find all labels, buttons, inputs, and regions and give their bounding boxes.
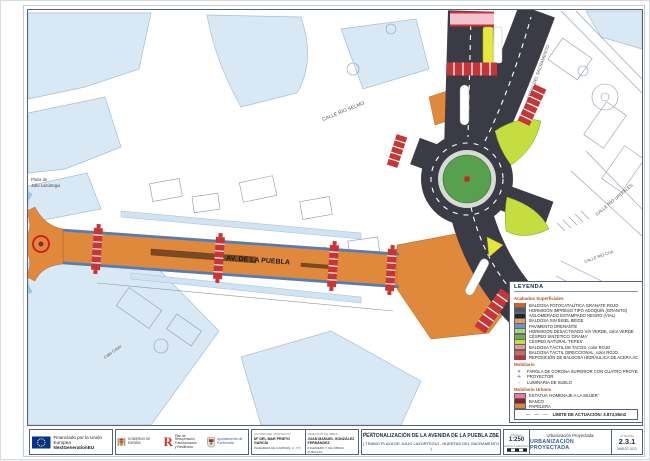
boundary-dash-icon: — — —: [526, 412, 549, 418]
color-swatch: [514, 355, 526, 360]
plan-title-label: PLANO:: [364, 431, 375, 435]
scale-value: 1:250: [509, 437, 524, 444]
graphic-scale-bar: [507, 448, 527, 452]
eu-funding-line1: Financiado por la Unión Europea: [54, 435, 111, 445]
scale-box: ESCALA 1:250 ESCALA GRÁFICA: [504, 430, 530, 454]
fountain-ornament: [33, 236, 49, 252]
plaza-label-line2: Julio Lazúrtegui: [31, 183, 60, 188]
plan-title-box: PLANO: PEATONALIZACIÓN DE LA AVENIDA DE …: [361, 429, 501, 455]
sheet-number-box: Nº PLANO 2.3.1 MARZO 2023: [612, 430, 642, 454]
authors-box: AUTORA DEL PROYECTO: Mª DEL MAR PRIETO G…: [251, 429, 359, 455]
plan-sheet: Plaza de Julio Lazúrtegui AV. DE LA PUEB…: [0, 0, 650, 460]
sheet-name-box: Urbanización Proyectada: URBANIZACIÓN PR…: [530, 430, 612, 454]
sheet-number: 2.3.1: [619, 438, 636, 446]
plaza-label-line1: Plaza de: [31, 177, 48, 182]
ground-light-icon: ◦: [514, 380, 524, 385]
plan-recuperacion-logo: R Plan de Recuperación, Transformación y…: [163, 435, 206, 450]
eu-funding-line2: NextGenerationEU: [54, 445, 111, 450]
legend-mobiliario-heading: Mobiliario: [514, 362, 638, 367]
plan-title-line1: PEATONALIZACIÓN DE LA AVENIDA DE LA PUEB…: [363, 433, 499, 439]
plan-title-line2: ( TRAMO PLAZA DE JULIO LAZÚRTEGUI - HUER…: [362, 441, 500, 451]
legend-item: REPOSICIÓN DE BALDOSA HIDRÁULICA DE ACER…: [514, 355, 638, 360]
legend-panel: LEYENDA Acabados Superficiales BALDOSA F…: [509, 281, 643, 423]
legend-surfaces-heading: Acabados Superficiales: [514, 296, 638, 301]
eu-funding-box: Financiado por la Unión Europea NextGene…: [29, 429, 113, 455]
white-lane: [494, 27, 502, 63]
spain-coat-of-arms-icon: [117, 436, 126, 448]
institution-logos-box: GOBIERNO DE ESPAÑA R Plan de Recuperació…: [115, 429, 249, 455]
legend-urbano-heading: Mobiliario Urbano: [514, 387, 638, 392]
limite-actuacion-row: — — — LÍMITE DE ACTUACIÓN: 3.873,55m2: [514, 409, 638, 420]
eu-flag-icon: [32, 435, 51, 450]
yellow-lane: [483, 27, 493, 63]
author-director: DIRECTOR DE OBRA: JUAN MANUEL GONZÁLEZ F…: [305, 430, 359, 454]
statue-marker: [465, 177, 470, 182]
ponferrada-shield-icon: [207, 437, 215, 448]
sheet-date: MARZO 2023: [617, 447, 637, 451]
ayuntamiento-logo: Ayuntamiento de Ponferrada: [207, 437, 247, 448]
gobierno-logo: GOBIERNO DE ESPAÑA: [117, 436, 163, 448]
legend-title: LEYENDA: [514, 284, 638, 292]
sheet-name: URBANIZACIÓN PROYECTADA: [530, 439, 611, 451]
refuge-island-north: [460, 85, 469, 125]
scale-and-sheet-box: ESCALA 1:250 ESCALA GRÁFICA Urbanización…: [503, 429, 643, 455]
legend-item: ◦LUMINARIA DE SUELO: [514, 379, 638, 384]
pink-crosswalk: [450, 12, 494, 27]
plan-r-icon: R: [163, 436, 172, 448]
author-project: AUTORA DEL PROYECTO: Mª DEL MAR PRIETO G…: [252, 430, 305, 454]
